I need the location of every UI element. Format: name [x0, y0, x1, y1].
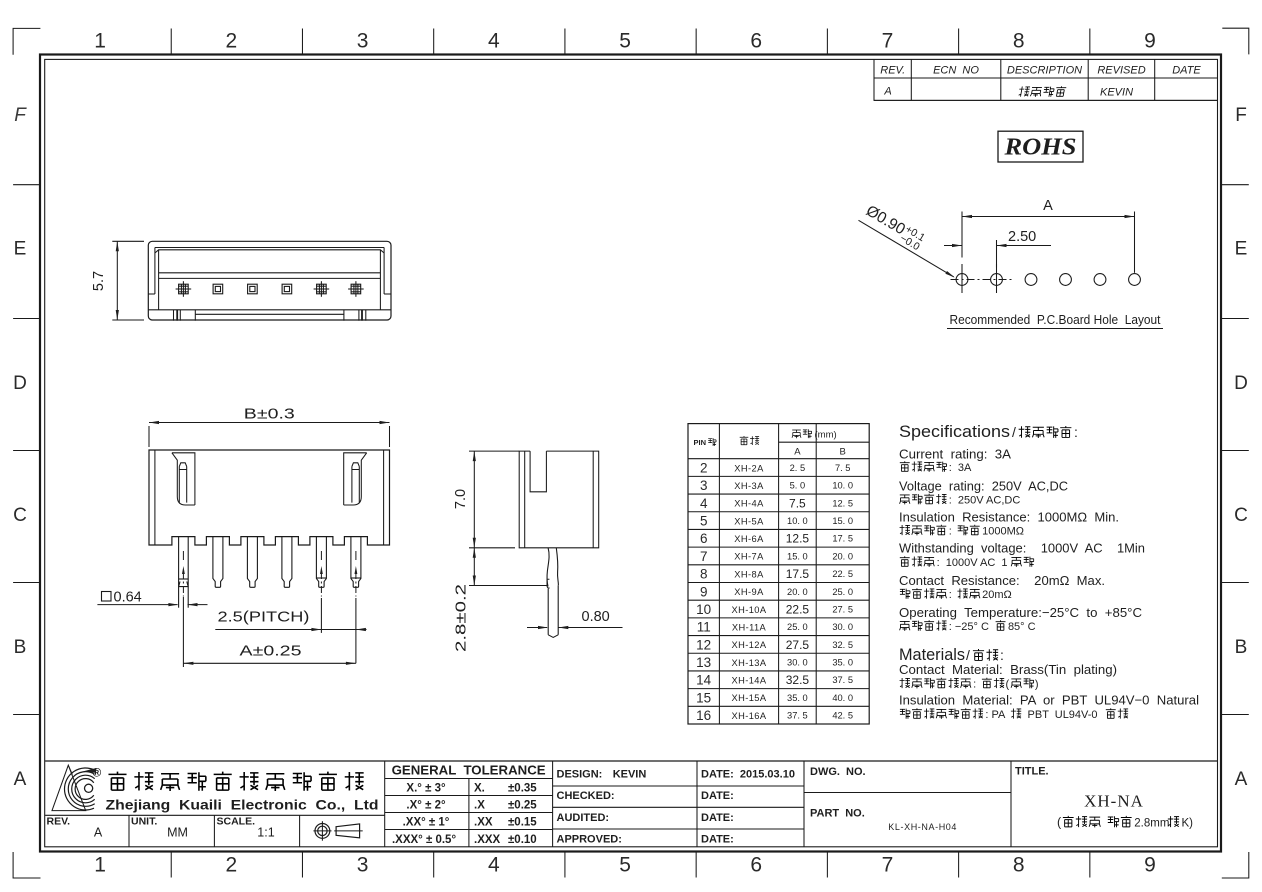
- svg-text:17. 5: 17. 5: [832, 534, 853, 544]
- svg-text:/: /: [1012, 424, 1016, 440]
- svg-text:16: 16: [696, 708, 711, 723]
- svg-text:X.: X.: [474, 783, 485, 795]
- svg-text:20. 0: 20. 0: [832, 551, 853, 561]
- svg-text:Insulation Resistance: 1000M: Insulation Resistance: 1000MΩ Min.: [899, 510, 1119, 525]
- svg-text:32.5: 32.5: [786, 673, 810, 687]
- svg-text:4: 4: [700, 496, 708, 511]
- svg-text:12. 5: 12. 5: [832, 498, 853, 508]
- svg-text:11: 11: [697, 620, 711, 635]
- svg-text:0.64: 0.64: [114, 590, 142, 606]
- svg-text:2: 2: [226, 854, 238, 877]
- svg-text:Current rating: 3A: Current rating: 3A: [899, 447, 1011, 462]
- svg-text:10. 0: 10. 0: [832, 481, 853, 491]
- svg-text:±0.35: ±0.35: [508, 783, 537, 795]
- svg-text:A: A: [794, 447, 801, 458]
- svg-text:XH-6A: XH-6A: [734, 534, 764, 544]
- svg-text:Zhejiang Kuaili Electronic: Zhejiang Kuaili Electronic Co., Ltd: [106, 798, 379, 813]
- svg-text:SCALE.: SCALE.: [217, 816, 256, 828]
- svg-text:±0.25: ±0.25: [508, 800, 537, 812]
- svg-text:REVISED: REVISED: [1097, 65, 1145, 77]
- svg-text:.XXX: .XXX: [474, 834, 501, 846]
- svg-text:AUDITED:: AUDITED:: [557, 812, 610, 824]
- svg-text:): ): [1035, 679, 1039, 691]
- svg-text:TITLE.: TITLE.: [1015, 766, 1049, 778]
- svg-text:XH-14A: XH-14A: [732, 676, 767, 686]
- svg-text:(mm): (mm): [815, 430, 837, 441]
- svg-text:GENERAL TOLERANCE: GENERAL TOLERANCE: [392, 764, 546, 778]
- svg-text:8: 8: [1013, 854, 1025, 877]
- svg-text:DATE: 2015.03.10: DATE: 2015.03.10: [701, 769, 795, 781]
- svg-text:6: 6: [750, 30, 762, 53]
- svg-text:0.80: 0.80: [582, 609, 610, 625]
- svg-text:35. 0: 35. 0: [787, 693, 808, 703]
- svg-text:XH-10A: XH-10A: [732, 605, 767, 615]
- svg-text:DESIGN:: DESIGN:: [557, 769, 603, 781]
- svg-text:12: 12: [696, 637, 711, 652]
- svg-text:B±0.3: B±0.3: [244, 407, 295, 423]
- svg-text:REV.: REV.: [47, 816, 71, 828]
- svg-text:15: 15: [696, 690, 711, 705]
- svg-text:B: B: [840, 447, 846, 458]
- svg-text:2.8±0.2: 2.8±0.2: [454, 584, 470, 652]
- svg-text::: :: [1000, 647, 1004, 663]
- svg-text:XH-3A: XH-3A: [734, 481, 764, 491]
- svg-text:E: E: [14, 239, 27, 260]
- svg-text:5: 5: [619, 854, 631, 877]
- svg-text:Withstanding voltage: 1000: Withstanding voltage: 1000V AC 1Min: [899, 541, 1145, 556]
- svg-text:: 3A: : 3A: [949, 462, 972, 474]
- svg-text:35. 0: 35. 0: [832, 658, 853, 668]
- svg-text::: :: [949, 589, 955, 601]
- svg-text:XH-8A: XH-8A: [734, 569, 764, 579]
- svg-text:2.50: 2.50: [1008, 229, 1036, 245]
- svg-text:2. 5: 2. 5: [790, 463, 806, 473]
- svg-text:1: 1: [94, 30, 106, 53]
- svg-text:A: A: [14, 769, 27, 790]
- svg-text:F: F: [14, 105, 27, 126]
- svg-text:±0.10: ±0.10: [508, 834, 537, 846]
- svg-text:32. 5: 32. 5: [832, 640, 853, 650]
- svg-text:8: 8: [700, 567, 708, 582]
- svg-text:.XX° ± 1°: .XX° ± 1°: [403, 817, 450, 829]
- svg-text:XH-4A: XH-4A: [734, 499, 764, 509]
- svg-text:ROHS: ROHS: [1003, 135, 1076, 161]
- svg-text:PBT UL94V-0: PBT UL94V-0: [1025, 709, 1101, 721]
- svg-text:XH-2A: XH-2A: [734, 463, 764, 473]
- svg-text:9: 9: [700, 584, 708, 599]
- svg-text:30. 0: 30. 0: [832, 622, 853, 632]
- svg-text:20. 0: 20. 0: [787, 587, 808, 597]
- svg-text:25. 0: 25. 0: [832, 587, 853, 597]
- svg-text:(: (: [1006, 679, 1010, 691]
- svg-text:27. 5: 27. 5: [832, 604, 853, 614]
- svg-text:15. 0: 15. 0: [832, 516, 853, 526]
- svg-text:±0.15: ±0.15: [508, 817, 537, 829]
- svg-text:DATE:: DATE:: [701, 790, 734, 802]
- svg-text:22.5: 22.5: [786, 602, 810, 616]
- svg-text:25. 0: 25. 0: [787, 622, 808, 632]
- svg-text:A: A: [883, 86, 891, 98]
- svg-text:PART NO.: PART NO.: [810, 808, 865, 820]
- svg-text:DATE:: DATE:: [701, 834, 734, 846]
- svg-text:2: 2: [226, 30, 238, 53]
- svg-text:D: D: [13, 373, 27, 394]
- svg-text:27.5: 27.5: [786, 638, 810, 652]
- svg-text:37. 5: 37. 5: [787, 711, 808, 721]
- svg-text:3: 3: [357, 30, 369, 53]
- svg-text:.XX: .XX: [474, 817, 493, 829]
- svg-text:K): K): [1182, 818, 1194, 830]
- svg-text:: 1000V AC 1: : 1000V AC 1: [937, 557, 1008, 569]
- svg-text:C: C: [1234, 505, 1248, 526]
- svg-text:7: 7: [882, 30, 894, 53]
- svg-text:A: A: [1235, 769, 1248, 790]
- svg-text:42. 5: 42. 5: [832, 711, 853, 721]
- svg-text::: :: [949, 526, 955, 538]
- svg-text:PIN: PIN: [694, 438, 707, 447]
- svg-text::: :: [973, 679, 979, 691]
- svg-text:A: A: [94, 826, 103, 840]
- svg-text:85° C: 85° C: [1008, 621, 1036, 633]
- svg-text:17.5: 17.5: [786, 567, 810, 581]
- svg-text:Operating Temperature:−25°C: Operating Temperature:−25°C to +85°C: [899, 605, 1142, 620]
- svg-text:1: 1: [94, 854, 106, 877]
- svg-text:D: D: [1234, 373, 1248, 394]
- svg-text:Contact Material: Brass(Tin: Contact Material: Brass(Tin plating): [899, 662, 1117, 677]
- svg-text:XH-11A: XH-11A: [732, 622, 767, 632]
- svg-text:®: ®: [92, 765, 101, 779]
- svg-text:Insulation Material: PA or: Insulation Material: PA or PBT UL94V−0 N…: [899, 693, 1199, 708]
- svg-text:7: 7: [700, 549, 708, 564]
- svg-text:8: 8: [1013, 30, 1025, 53]
- svg-text:.X: .X: [474, 800, 485, 812]
- svg-text:Voltage rating: 250V AC,DC: Voltage rating: 250V AC,DC: [899, 479, 1068, 494]
- svg-text:E: E: [1235, 239, 1248, 260]
- svg-text:Specifications: Specifications: [899, 422, 1010, 441]
- svg-text:C: C: [13, 505, 27, 526]
- svg-text:40. 0: 40. 0: [832, 693, 853, 703]
- svg-text:10. 0: 10. 0: [787, 516, 808, 526]
- svg-text:5.7: 5.7: [91, 271, 107, 291]
- svg-text:XH-9A: XH-9A: [734, 587, 764, 597]
- svg-text:10: 10: [696, 602, 711, 617]
- svg-text:DWG. NO.: DWG. NO.: [810, 766, 866, 778]
- svg-text:X.° ± 3°: X.° ± 3°: [406, 783, 446, 795]
- svg-text:.X° ± 2°: .X° ± 2°: [406, 800, 446, 812]
- svg-text:1000MΩ: 1000MΩ: [982, 526, 1024, 538]
- svg-text:KL-XH-NA-H04: KL-XH-NA-H04: [888, 822, 957, 832]
- svg-text:6: 6: [700, 531, 708, 546]
- svg-text:Contact Resistance: 20mΩ: Contact Resistance: 20mΩ Max.: [899, 573, 1105, 588]
- svg-text:6: 6: [750, 854, 762, 877]
- svg-text:B: B: [14, 637, 27, 658]
- svg-text:2: 2: [700, 461, 708, 476]
- svg-text:XH-16A: XH-16A: [732, 711, 767, 721]
- svg-text:Recommended P.C.Board Hole L: Recommended P.C.Board Hole Layout: [950, 312, 1161, 327]
- svg-text::: :: [1074, 424, 1078, 440]
- svg-text:APPROVED:: APPROVED:: [557, 834, 622, 846]
- svg-text:4: 4: [488, 854, 500, 877]
- svg-text:DATE: DATE: [1172, 65, 1201, 77]
- svg-text:DESCRIPTION: DESCRIPTION: [1007, 65, 1082, 77]
- svg-text:14: 14: [696, 673, 712, 688]
- svg-text:2.5(PITCH): 2.5(PITCH): [218, 610, 310, 626]
- svg-text:REV.: REV.: [880, 65, 905, 77]
- svg-text:30. 0: 30. 0: [787, 658, 808, 668]
- svg-text:DATE:: DATE:: [701, 812, 734, 824]
- svg-text:4: 4: [488, 30, 500, 53]
- svg-text:: −25° C: : −25° C: [949, 621, 992, 633]
- svg-text:: 250V AC,DC: : 250V AC,DC: [949, 495, 1021, 507]
- svg-text:20mΩ: 20mΩ: [982, 589, 1012, 601]
- svg-text:13: 13: [696, 655, 711, 670]
- svg-text:15. 0: 15. 0: [787, 551, 808, 561]
- svg-text:B: B: [1235, 637, 1248, 658]
- svg-text:12.5: 12.5: [786, 532, 810, 546]
- svg-text:5. 0: 5. 0: [790, 481, 806, 491]
- svg-text:XH-7A: XH-7A: [734, 552, 764, 562]
- svg-text:XH-12A: XH-12A: [732, 640, 767, 650]
- svg-text:22. 5: 22. 5: [832, 569, 853, 579]
- svg-text:7.0: 7.0: [453, 489, 469, 509]
- svg-text:: PA: : PA: [985, 709, 1007, 721]
- svg-text:5: 5: [619, 30, 631, 53]
- svg-text:KEVIN: KEVIN: [613, 769, 647, 781]
- svg-text:MM: MM: [167, 826, 188, 840]
- svg-text:A±0.25: A±0.25: [240, 644, 302, 660]
- svg-text:2.8mm: 2.8mm: [1134, 818, 1169, 830]
- svg-text:7.5: 7.5: [789, 496, 806, 510]
- svg-text:F: F: [1235, 105, 1247, 126]
- svg-text:7: 7: [882, 854, 894, 877]
- svg-text:XH-15A: XH-15A: [732, 693, 767, 703]
- svg-text:1:1: 1:1: [257, 826, 274, 840]
- svg-text:CHECKED:: CHECKED:: [557, 790, 615, 802]
- svg-text:XH-5A: XH-5A: [734, 516, 764, 526]
- svg-text:9: 9: [1144, 30, 1156, 53]
- svg-text:37. 5: 37. 5: [832, 675, 853, 685]
- svg-text:UNIT.: UNIT.: [131, 816, 157, 828]
- svg-text:ECN NO: ECN NO: [933, 65, 979, 77]
- svg-text:3: 3: [357, 854, 369, 877]
- svg-text:9: 9: [1144, 854, 1156, 877]
- svg-text:KEVIN: KEVIN: [1100, 87, 1133, 99]
- svg-text:XH-NA: XH-NA: [1084, 792, 1144, 811]
- svg-text:A: A: [1043, 198, 1053, 214]
- svg-text:7. 5: 7. 5: [835, 463, 851, 473]
- svg-text:3: 3: [700, 478, 708, 493]
- svg-text:XH-13A: XH-13A: [732, 658, 767, 668]
- svg-text:/: /: [966, 647, 970, 663]
- svg-text:.XXX° ± 0.5°: .XXX° ± 0.5°: [392, 834, 456, 846]
- svg-text:5: 5: [700, 514, 708, 529]
